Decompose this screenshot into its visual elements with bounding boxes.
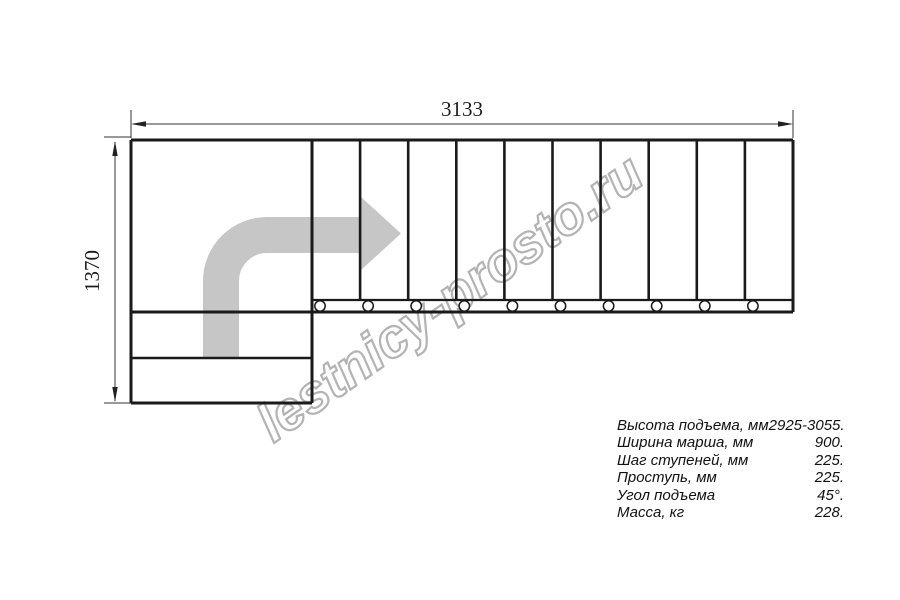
spec-row: Ширина марша, мм 900.	[617, 434, 844, 451]
height-dimension: 1370	[80, 137, 131, 403]
spec-value: 225.	[815, 469, 844, 486]
dim-arrow-down	[112, 387, 117, 402]
watermark: lestnicy-prosto.ru	[246, 143, 654, 454]
fastener-circle	[603, 301, 613, 311]
spec-row: Проступь, мм 225.	[617, 469, 844, 486]
height-dimension-label: 1370	[80, 250, 104, 292]
fastener-circle	[363, 301, 373, 311]
width-dimension-label: 3133	[441, 97, 483, 121]
spec-table: Высота подъема, мм 2925-3055. Ширина мар…	[617, 417, 844, 521]
spec-label: Высота подъема, мм	[617, 417, 769, 434]
spec-value: 228.	[815, 504, 844, 521]
fastener-circle	[459, 301, 469, 311]
spec-value: 2925-3055.	[769, 417, 845, 434]
fastener-circle	[652, 301, 662, 311]
spec-value: 900.	[815, 434, 844, 451]
spec-label: Ширина марша, мм	[617, 434, 753, 451]
spec-row: Угол подъема 45°.	[617, 487, 844, 504]
fastener-circle	[748, 301, 758, 311]
spec-row: Масса, кг 228.	[617, 504, 844, 521]
spec-label: Шаг ступеней, мм	[617, 452, 748, 469]
spec-label: Проступь, мм	[617, 469, 717, 486]
fastener-circle	[411, 301, 421, 311]
spec-value: 45°.	[817, 487, 844, 504]
dim-arrow-up	[112, 141, 117, 156]
spec-value: 225.	[815, 452, 844, 469]
fastener-circle	[315, 301, 325, 311]
spec-label: Масса, кг	[617, 504, 684, 521]
spec-label: Угол подъема	[617, 487, 715, 504]
stair-tread-lines	[360, 140, 745, 300]
dim-arrow-right	[778, 121, 793, 126]
spec-row: Высота подъема, мм 2925-3055.	[617, 417, 844, 434]
fastener-circle	[555, 301, 565, 311]
dim-arrow-left	[131, 121, 146, 126]
width-dimension: 3133	[131, 97, 793, 138]
stair-plan-page: lestnicy-prosto.ru	[0, 0, 900, 600]
fastener-circle	[700, 301, 710, 311]
fastener-circle	[507, 301, 517, 311]
spec-row: Шаг ступеней, мм 225.	[617, 452, 844, 469]
